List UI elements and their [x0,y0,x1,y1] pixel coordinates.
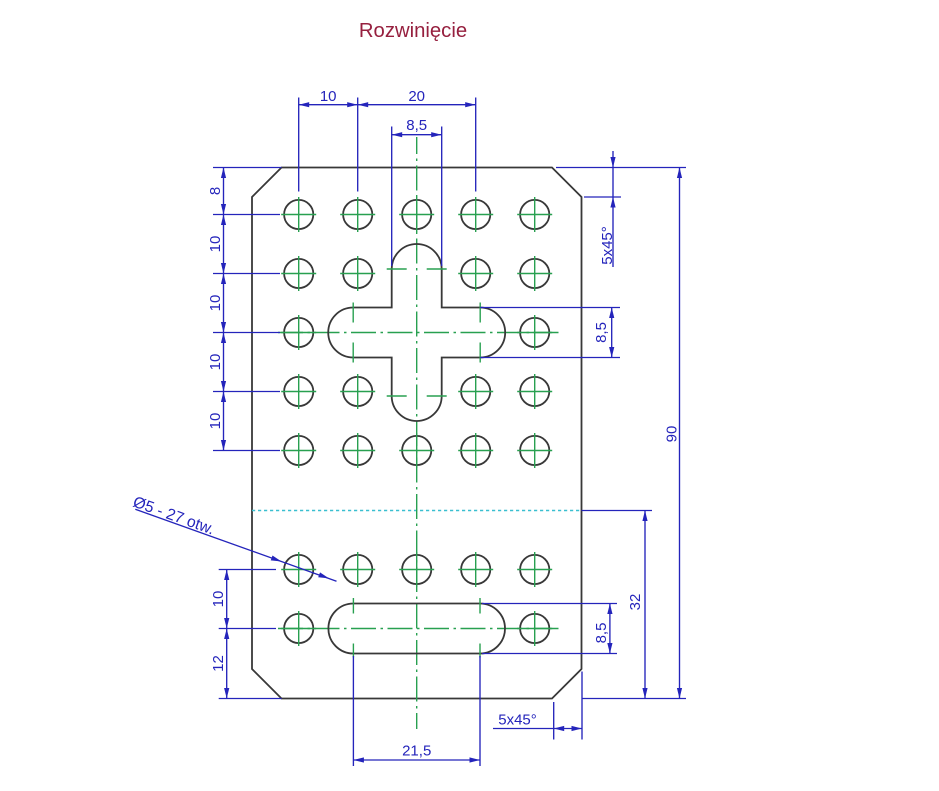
svg-text:10: 10 [207,354,224,371]
svg-text:5x45°: 5x45° [498,712,537,729]
svg-text:21,5: 21,5 [402,743,431,760]
svg-text:8,5: 8,5 [593,322,610,343]
svg-text:10: 10 [320,88,337,105]
svg-text:5x45°: 5x45° [599,226,616,265]
svg-text:10: 10 [207,295,224,312]
svg-text:12: 12 [210,655,227,672]
svg-text:10: 10 [207,236,224,253]
svg-text:8,5: 8,5 [406,117,427,134]
svg-text:10: 10 [210,591,227,608]
svg-text:32: 32 [627,594,644,611]
svg-text:90: 90 [664,426,681,443]
svg-text:Rozwinięcie: Rozwinięcie [359,20,467,42]
svg-text:20: 20 [408,88,425,105]
svg-text:8: 8 [207,187,224,195]
svg-text:10: 10 [207,413,224,430]
svg-text:8,5: 8,5 [593,623,610,644]
